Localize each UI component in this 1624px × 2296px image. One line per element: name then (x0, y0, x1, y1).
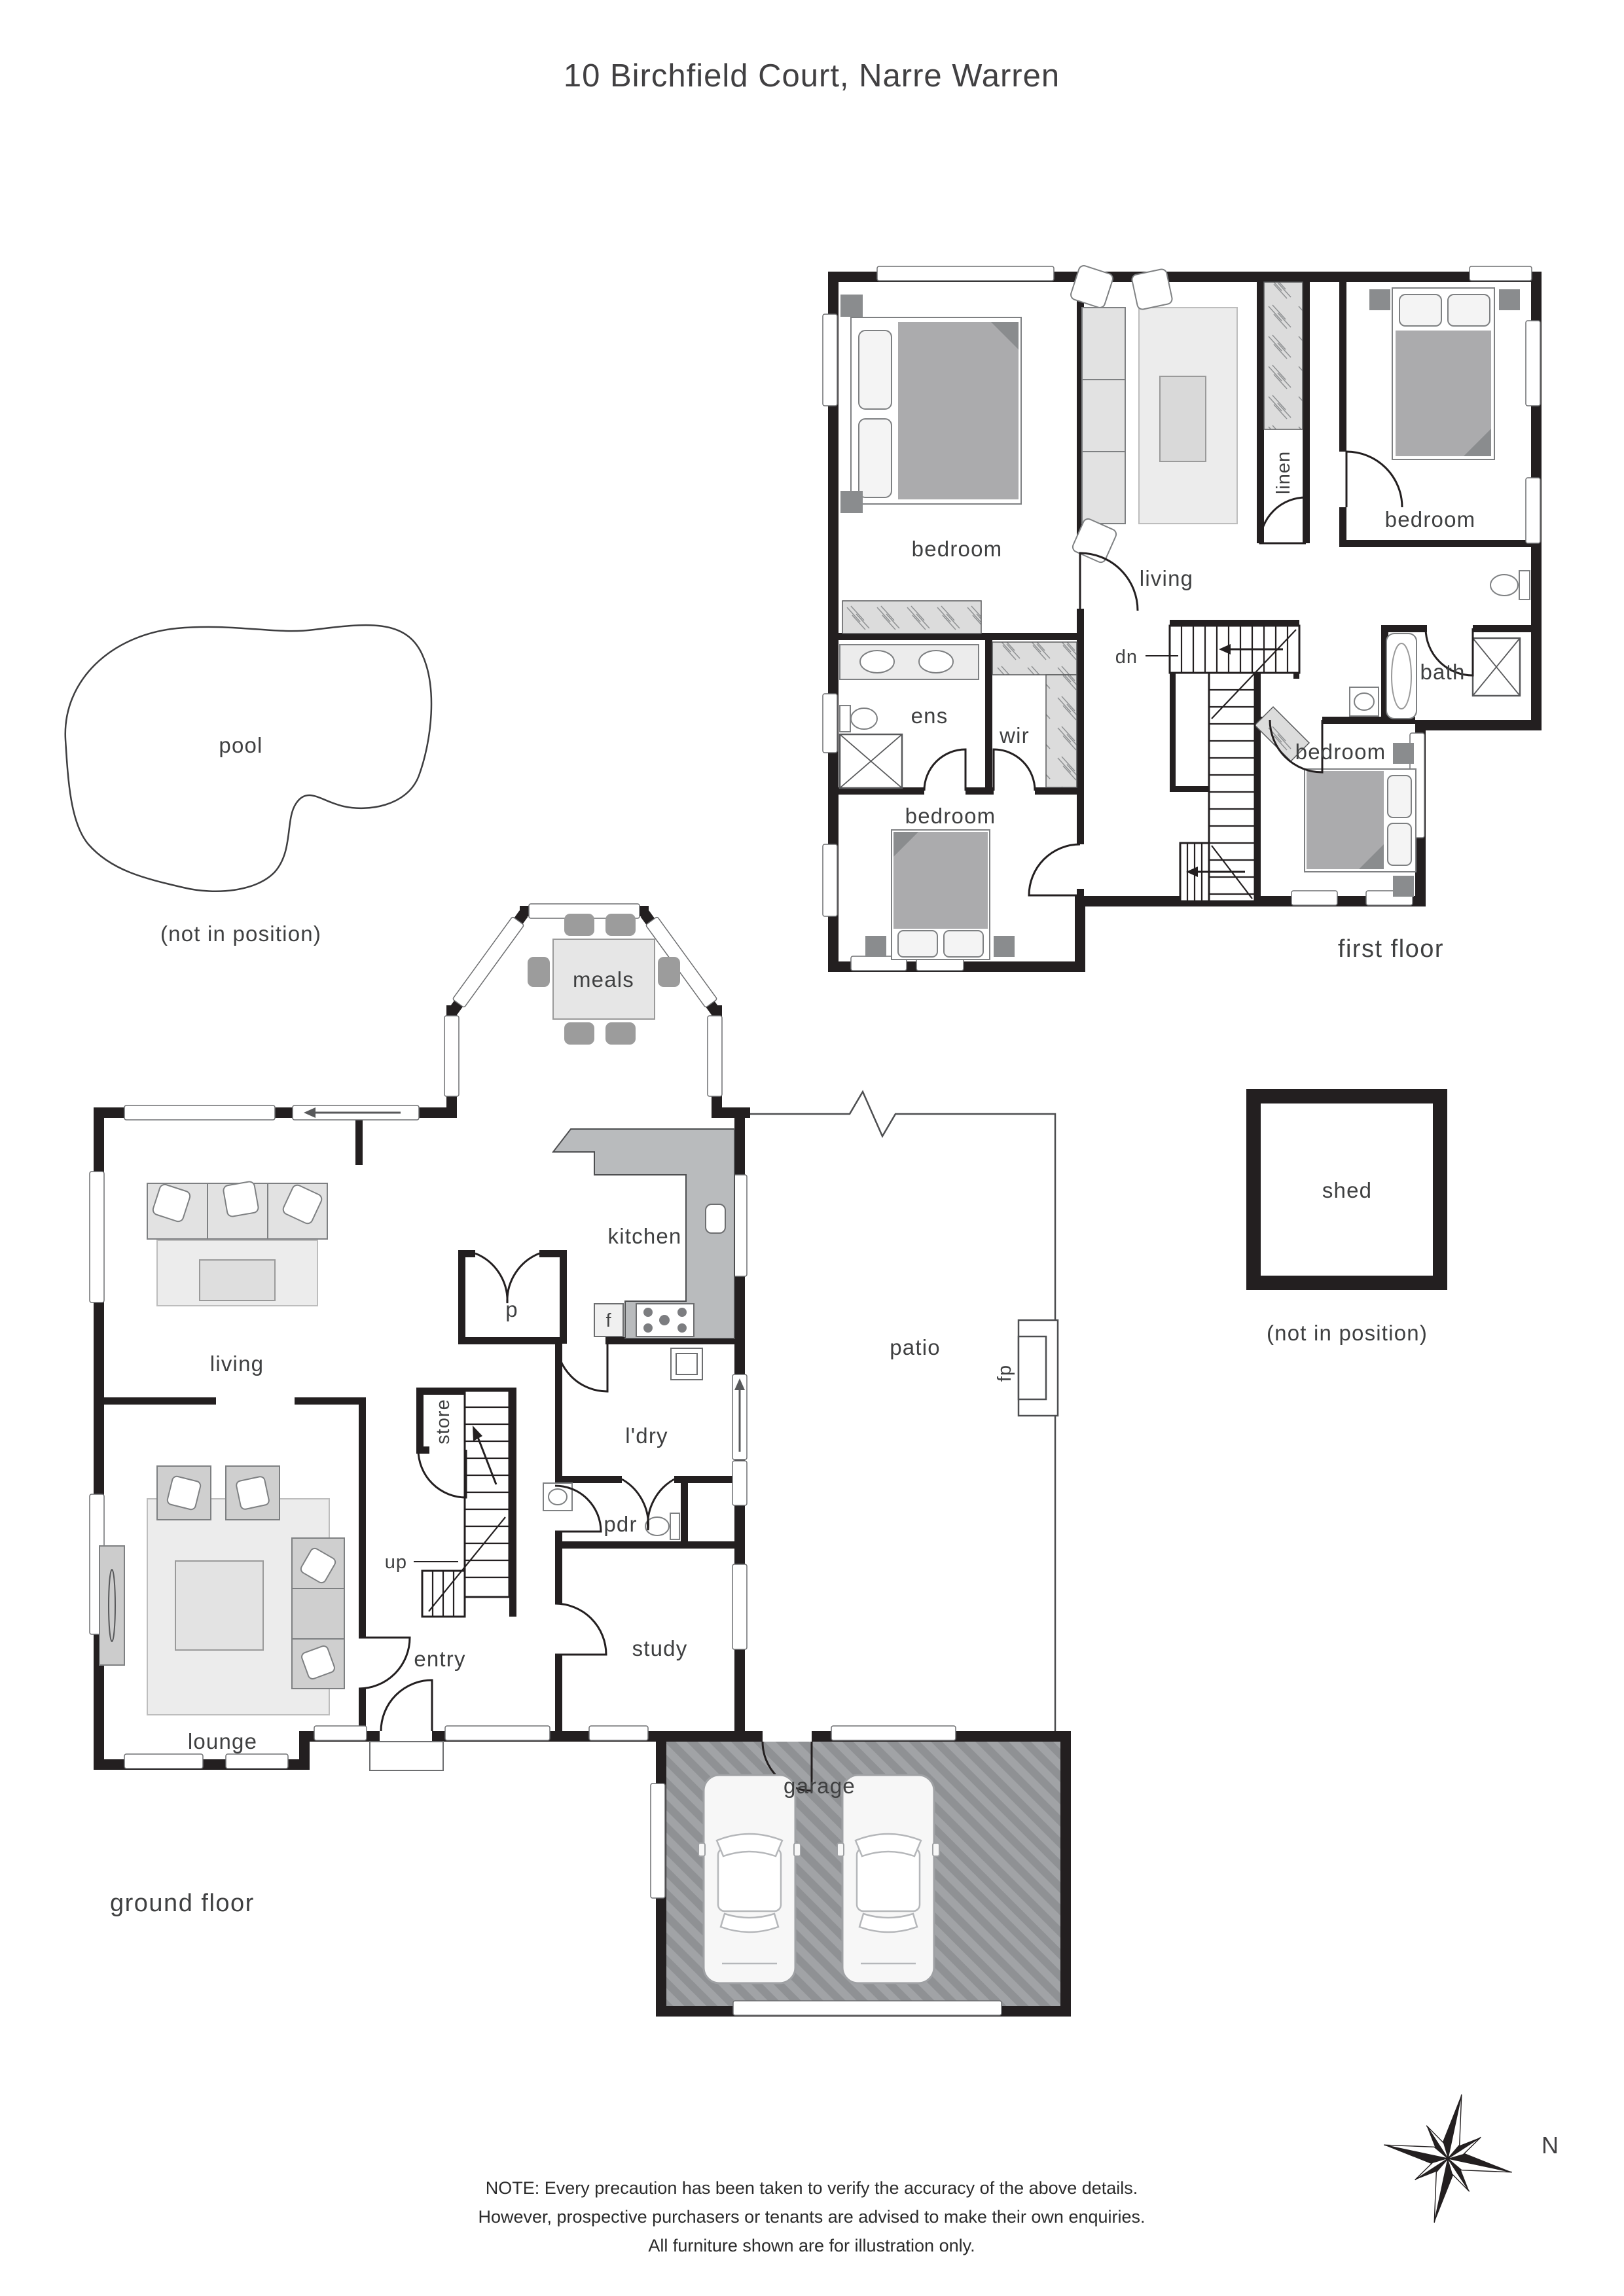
pool-label: pool (219, 733, 262, 757)
armchair-icon (157, 1466, 211, 1520)
room-label-ens: ens (911, 704, 948, 728)
wir-robe-side-icon (1046, 675, 1077, 787)
shower-icon (1473, 638, 1520, 696)
fireplace-icon (99, 1546, 124, 1665)
room-label-wir: wir (999, 723, 1030, 747)
stairs-dn-label: dn (1115, 647, 1138, 668)
shed-note: (not in position) (1267, 1321, 1428, 1345)
ground-floor-plan: f (90, 904, 1071, 2017)
cooktop-icon (636, 1304, 694, 1336)
room-label-store: store (433, 1399, 454, 1444)
bathtub-icon (1386, 634, 1416, 719)
room-label-laundry: l'dry (625, 1424, 668, 1448)
stairs-up-label: up (385, 1552, 407, 1573)
room-label-patio: patio (890, 1335, 941, 1359)
fridge-label: f (605, 1310, 611, 1331)
room-label-bedroom-br: bedroom (1295, 740, 1386, 764)
coffee-table-icon (1160, 376, 1206, 461)
shower-icon (840, 734, 902, 788)
disclaimer-line2: However, prospective purchasers or tenan… (478, 2207, 1145, 2227)
car-icon (837, 1775, 939, 1983)
shed: shed (not in position) (1254, 1096, 1440, 1345)
room-label-bedroom-tr: bedroom (1385, 507, 1476, 531)
pool-outline-icon (65, 625, 431, 891)
first-floor-label: first floor (1338, 935, 1444, 963)
room-label-garage: garage (784, 1774, 856, 1798)
disclaimer: NOTE: Every precaution has been taken to… (478, 2178, 1145, 2255)
ground-living-furniture (147, 1181, 327, 1306)
bed-tl-icon (840, 295, 1021, 513)
room-label-bedroom-tl: bedroom (912, 537, 1003, 561)
first-floor-plan: bedroom living linen bedroom ens wir bat… (823, 264, 1542, 972)
pool: pool (not in position) (65, 625, 431, 946)
room-label-kitchen: kitchen (608, 1224, 682, 1248)
first-floor-living-furniture (1070, 264, 1237, 564)
patio-fireplace-icon (1019, 1320, 1058, 1416)
basin-icon (1350, 687, 1379, 716)
disclaimer-line1: NOTE: Every precaution has been taken to… (486, 2178, 1138, 2198)
pool-note: (not in position) (160, 922, 321, 946)
kitchen-sink-icon (706, 1204, 725, 1233)
table-icon (175, 1561, 263, 1650)
sofa-icon (292, 1538, 344, 1689)
car-icon (698, 1775, 801, 1983)
toilet-icon (840, 706, 877, 732)
linen-robe-icon (1264, 282, 1303, 429)
cushion-icon (1131, 268, 1173, 310)
shed-label: shed (1322, 1178, 1372, 1202)
room-label-meals: meals (573, 967, 634, 992)
room-label-powder: pdr (604, 1512, 637, 1536)
room-label-linen: linen (1273, 451, 1294, 494)
room-label-study: study (632, 1636, 688, 1660)
robe-icon (842, 601, 981, 634)
room-label-bedroom-bl: bedroom (905, 804, 996, 828)
page-title: 10 Birchfield Court, Narre Warren (564, 58, 1060, 94)
cushion-icon (223, 1181, 259, 1217)
room-label-living-ff: living (1140, 566, 1193, 590)
patio-outline (750, 1092, 1055, 1731)
wir-robe-icon (992, 642, 1077, 675)
compass-rose-icon (1382, 2092, 1513, 2224)
sofa-icon (1082, 308, 1125, 524)
room-label-fp: fp (994, 1365, 1015, 1382)
room-label-bath: bath (1420, 660, 1465, 684)
ground-floor-label: ground floor (110, 1890, 255, 1917)
room-label-lounge: lounge (188, 1729, 257, 1753)
room-label-living-gf: living (210, 1352, 264, 1376)
armchair-icon (226, 1466, 280, 1520)
coffee-table-icon (200, 1260, 275, 1300)
room-label-entry: entry (414, 1647, 465, 1671)
room-label-pantry: p (505, 1297, 518, 1321)
laundry-tub-icon (671, 1348, 702, 1380)
north-label: N (1542, 2132, 1559, 2159)
floorplan-canvas: 10 Birchfield Court, Narre Warren pool (… (0, 0, 1624, 2296)
compass-long-points (1382, 2092, 1513, 2224)
disclaimer-line3: All furniture shown are for illustration… (648, 2236, 975, 2255)
